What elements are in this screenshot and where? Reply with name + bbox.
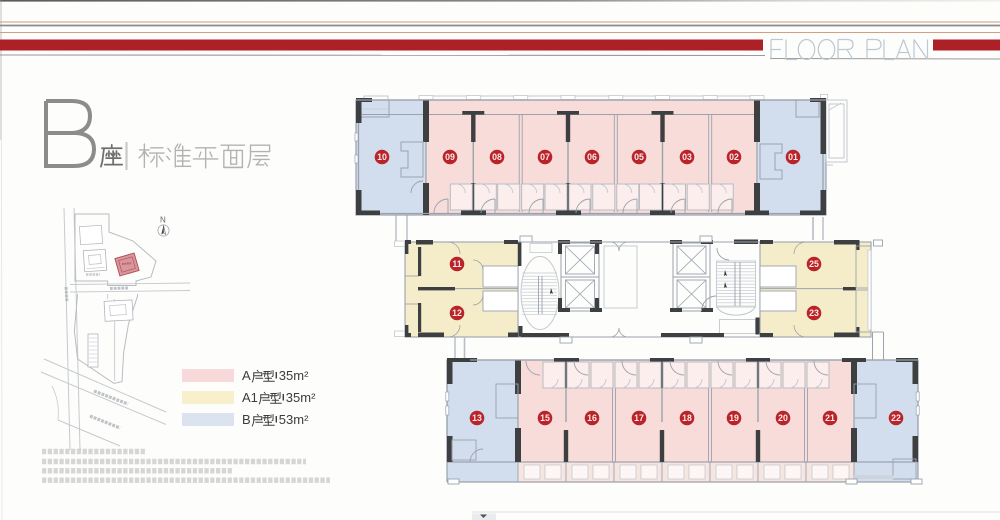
svg-text:A: A <box>242 368 251 383</box>
svg-text:11: 11 <box>452 259 461 269</box>
svg-text:25: 25 <box>809 259 819 269</box>
svg-text:07: 07 <box>540 152 550 162</box>
svg-text:10: 10 <box>377 152 387 162</box>
svg-text:15: 15 <box>540 413 550 423</box>
svg-text:35m²: 35m² <box>279 368 309 383</box>
svg-text:22: 22 <box>891 413 901 423</box>
svg-text:06: 06 <box>587 152 597 162</box>
svg-text:B: B <box>242 412 251 427</box>
svg-text:A1: A1 <box>242 390 258 405</box>
svg-text:13: 13 <box>472 413 482 423</box>
svg-text:20: 20 <box>778 413 788 423</box>
svg-text:N: N <box>160 216 166 225</box>
svg-text:53m²: 53m² <box>279 412 309 427</box>
svg-text:19: 19 <box>729 413 739 423</box>
svg-text:35m²: 35m² <box>286 390 316 405</box>
svg-text:21: 21 <box>825 413 835 423</box>
svg-text:08: 08 <box>492 152 502 162</box>
svg-text:09: 09 <box>445 152 455 162</box>
svg-text:18: 18 <box>682 413 692 423</box>
svg-text:05: 05 <box>634 152 644 162</box>
svg-text:23: 23 <box>809 308 819 318</box>
svg-text:01: 01 <box>788 152 798 162</box>
svg-text:17: 17 <box>634 413 644 423</box>
svg-text:02: 02 <box>729 152 739 162</box>
svg-text:12: 12 <box>452 308 462 318</box>
svg-text:03: 03 <box>682 152 692 162</box>
svg-text:16: 16 <box>587 413 597 423</box>
